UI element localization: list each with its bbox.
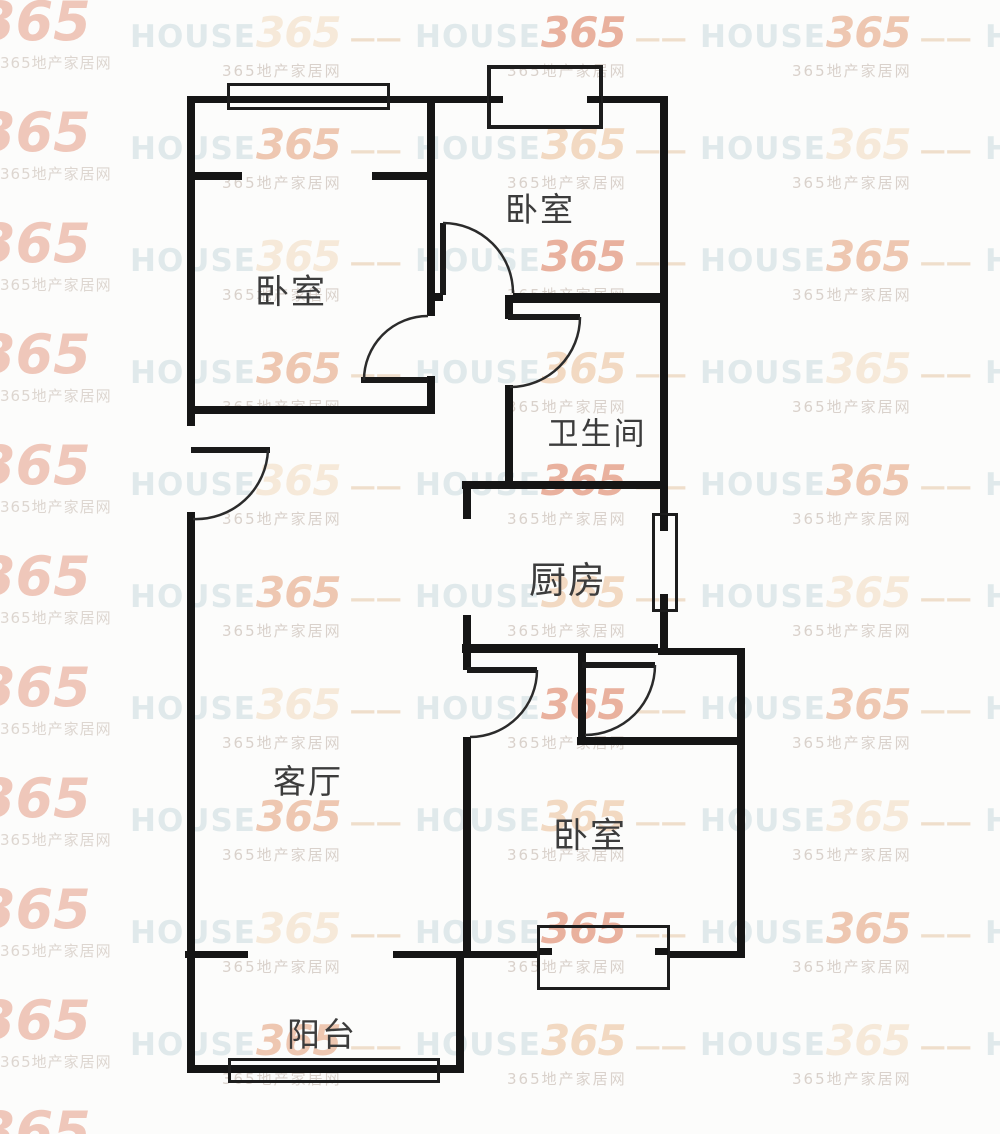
door-arc-canvas: [0, 0, 1000, 1134]
door-bedroom-top-left-swing-arc: [364, 316, 428, 380]
room-label-bedroom-top-left: 卧室: [255, 265, 327, 314]
room-label-bedroom-top-right: 卧室: [505, 183, 575, 231]
door-bathroom-swing-arc: [510, 317, 580, 387]
room-label-bathroom: 卫生间: [548, 409, 647, 454]
room-label-living-room: 客厅: [273, 755, 343, 803]
room-label-bedroom-bottom: 卧室: [553, 808, 627, 859]
door-bedroom-top-right-swing-arc: [443, 223, 513, 293]
room-label-kitchen: 厨房: [529, 550, 607, 604]
door-entry-swing-arc: [193, 450, 268, 519]
floorplan-drawing: 卧室卧室卫生间厨房客厅卧室阳台: [0, 0, 1000, 1134]
door-bedroom-bottom-b-swing-arc: [585, 665, 655, 735]
room-label-balcony: 阳台: [287, 1008, 357, 1056]
floorplan-image: HOUSE365 ——365地产家居网HOUSE365 ——365地产家居网HO…: [0, 0, 1000, 1134]
door-bedroom-bottom-a-swing-arc: [470, 670, 537, 737]
